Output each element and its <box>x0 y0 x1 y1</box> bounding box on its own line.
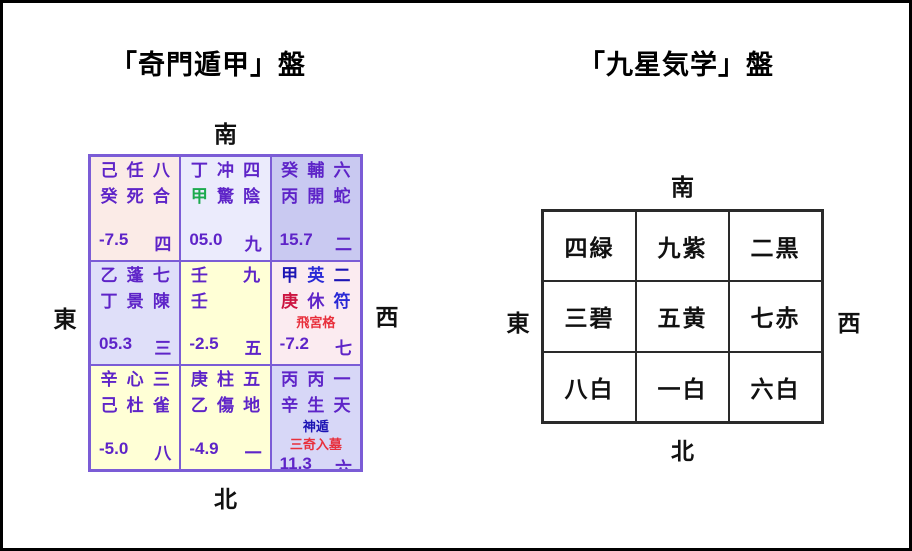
qimen-south-label: 南 <box>88 115 363 149</box>
qimen-char: 合 <box>152 185 170 209</box>
qimen-char: 地 <box>243 394 261 418</box>
qimen-north-label: 北 <box>88 480 363 514</box>
qimen-cell-2-row2: 丙 開 蛇 <box>272 183 360 209</box>
spacer <box>181 209 269 230</box>
qimen-cell-1: 丁 冲 四 甲 驚 陰 05.0 九 <box>180 156 270 261</box>
qimen-score: 05.0 <box>189 230 222 255</box>
qimen-char: 壬 <box>190 290 208 314</box>
qimen-cell-5-bottom: -7.2 七 <box>272 334 360 364</box>
kyusei-cell-1: 九紫 <box>636 211 729 281</box>
qimen-palace-number: 三 <box>154 334 171 359</box>
qimen-cell-6: 辛 心 三 己 杜 雀 -5.0 八 <box>90 365 180 470</box>
qimen-char: 壬 <box>190 264 208 288</box>
qimen-char: 庚 <box>190 368 208 392</box>
qimen-cell-7: 庚 柱 五 乙 傷 地 -4.9 一 <box>180 365 270 470</box>
qimen-cell-8-bottom: 11.3 六 <box>272 454 360 470</box>
qimen-cell-7-row1: 庚 柱 五 <box>181 366 269 392</box>
qimen-note-sanki-nyubo: 三奇入墓 <box>272 436 360 454</box>
qimen-char: 六 <box>333 159 351 183</box>
qimen-score: 05.3 <box>99 334 132 359</box>
qimen-score: -2.5 <box>189 334 218 359</box>
qimen-palace-number: 八 <box>154 439 171 464</box>
qimen-char: 丙 <box>281 185 299 209</box>
qimen-char: 休 <box>307 290 325 314</box>
qimen-char: 死 <box>126 185 144 209</box>
qimen-palace-number: 五 <box>245 334 262 359</box>
qimen-score: -5.0 <box>99 439 128 464</box>
qimen-char: 心 <box>126 368 144 392</box>
qimen-west-label: 西 <box>369 298 405 332</box>
qimen-char-navy: 二 <box>333 264 351 288</box>
qimen-char: 傷 <box>216 394 234 418</box>
qimen-cell-0-row1: 己 任 八 <box>91 157 179 183</box>
qimen-char: 癸 <box>281 159 299 183</box>
qimen-char: 八 <box>152 159 170 183</box>
qimen-char: 丙 <box>281 368 299 392</box>
qimen-char: 一 <box>333 368 351 392</box>
qimen-char: 五 <box>243 368 261 392</box>
qimen-cell-3-row1: 乙 蓬 七 <box>91 262 179 288</box>
qimen-cell-1-row2: 甲 驚 陰 <box>181 183 269 209</box>
kyusei-west-label: 西 <box>831 304 867 338</box>
qimen-char: 己 <box>100 394 118 418</box>
qimen-char: 杜 <box>126 394 144 418</box>
qimen-palace-number: 四 <box>154 230 171 255</box>
qimen-cell-2-bottom: 15.7 二 <box>272 230 360 260</box>
kyusei-cell-4: 五黄 <box>636 281 729 351</box>
qimen-cell-5: 甲 英 二 庚 休 符 飛宮格 -7.2 七 <box>271 261 361 366</box>
qimen-char: 開 <box>307 185 325 209</box>
qimen-char: 蛇 <box>333 185 351 209</box>
qimen-char: 丁 <box>190 159 208 183</box>
qimen-char: 驚 <box>216 185 234 209</box>
qimen-note-hikyukaku: 飛宮格 <box>272 314 360 332</box>
kyusei-cell-2: 二黒 <box>729 211 822 281</box>
qimen-score: -7.5 <box>99 230 128 255</box>
qimen-cell-8-row2: 辛 生 天 <box>272 392 360 418</box>
qimen-cell-3: 乙 蓬 七 丁 景 陳 05.3 三 <box>90 261 180 366</box>
qimen-board-title: 「奇門遁甲」盤 <box>73 43 343 82</box>
qimen-cell-1-row1: 丁 冲 四 <box>181 157 269 183</box>
qimen-cell-6-bottom: -5.0 八 <box>91 439 179 469</box>
qimen-cell-1-bottom: 05.0 九 <box>181 230 269 260</box>
qimen-char: 冲 <box>216 159 234 183</box>
qimen-score: 11.3 <box>280 454 312 470</box>
qimen-char: 陰 <box>243 185 261 209</box>
kyusei-cell-0: 四緑 <box>543 211 636 281</box>
qimen-note-shinton: 神遁 <box>272 418 360 436</box>
qimen-palace-number: 六 <box>335 454 352 470</box>
qimen-char: 九 <box>243 264 261 288</box>
kyusei-board: 四緑 九紫 二黒 三碧 五黄 七赤 八白 一白 六白 <box>541 209 824 424</box>
qimen-char-green: 甲 <box>190 185 208 209</box>
qimen-cell-2: 癸 輔 六 丙 開 蛇 15.7 二 <box>271 156 361 261</box>
qimen-cell-6-row2: 己 杜 雀 <box>91 392 179 418</box>
qimen-score: -7.2 <box>280 334 309 359</box>
qimen-char-blue: 符 <box>333 290 351 314</box>
kyusei-south-label: 南 <box>541 168 824 202</box>
qimen-char: 柱 <box>216 368 234 392</box>
qimen-east-label: 東 <box>47 300 83 334</box>
qimen-cell-4-row2: 壬 <box>181 288 269 314</box>
qimen-char: 七 <box>152 264 170 288</box>
qimen-cell-0-bottom: -7.5 四 <box>91 230 179 260</box>
kyusei-cell-6: 八白 <box>543 352 636 422</box>
qimen-char: 己 <box>100 159 118 183</box>
spacer <box>181 418 269 439</box>
qimen-char <box>216 264 234 288</box>
spacer <box>91 314 179 335</box>
qimen-char: 輔 <box>307 159 325 183</box>
qimen-char: 癸 <box>100 185 118 209</box>
qimen-char-blue: 英 <box>307 264 325 288</box>
kyusei-cell-5: 七赤 <box>729 281 822 351</box>
kyusei-cell-8: 六白 <box>729 352 822 422</box>
qimen-cell-4-row1: 壬 九 <box>181 262 269 288</box>
spacer <box>272 209 360 230</box>
qimen-cell-5-row2: 庚 休 符 <box>272 288 360 314</box>
two-boards-figure: 「奇門遁甲」盤 「九星気学」盤 南 東 西 北 己 任 八 癸 死 合 -7.5… <box>0 0 912 551</box>
qimen-char-navy: 甲 <box>281 264 299 288</box>
qimen-char: 四 <box>243 159 261 183</box>
qimen-char: 丙 <box>307 368 325 392</box>
qimen-char: 景 <box>126 290 144 314</box>
qimen-cell-4-bottom: -2.5 五 <box>181 334 269 364</box>
qimen-cell-0: 己 任 八 癸 死 合 -7.5 四 <box>90 156 180 261</box>
qimen-char: 生 <box>307 394 325 418</box>
qimen-char: 蓬 <box>126 264 144 288</box>
qimen-cell-7-bottom: -4.9 一 <box>181 439 269 469</box>
qimen-cell-8: 丙 丙 一 辛 生 天 神遁 三奇入墓 11.3 六 <box>271 365 361 470</box>
qimen-cell-7-row2: 乙 傷 地 <box>181 392 269 418</box>
spacer <box>91 209 179 230</box>
qimen-char: 辛 <box>281 394 299 418</box>
qimen-score: -4.9 <box>189 439 218 464</box>
qimen-cell-0-row2: 癸 死 合 <box>91 183 179 209</box>
qimen-cell-3-bottom: 05.3 三 <box>91 334 179 364</box>
qimen-char: 丁 <box>100 290 118 314</box>
qimen-char: 辛 <box>100 368 118 392</box>
qimen-palace-number: 一 <box>245 439 262 464</box>
spacer <box>181 314 269 335</box>
kyusei-cell-3: 三碧 <box>543 281 636 351</box>
qimen-cell-5-row1: 甲 英 二 <box>272 262 360 288</box>
qimen-cell-4: 壬 九 壬 -2.5 五 <box>180 261 270 366</box>
qimen-cell-3-row2: 丁 景 陳 <box>91 288 179 314</box>
qimen-char: 天 <box>333 394 351 418</box>
qimen-char: 雀 <box>152 394 170 418</box>
qimen-char: 乙 <box>190 394 208 418</box>
qimen-char: 陳 <box>152 290 170 314</box>
qimen-char <box>243 290 261 314</box>
qimen-cell-2-row1: 癸 輔 六 <box>272 157 360 183</box>
spacer <box>91 418 179 439</box>
qimen-palace-number: 二 <box>335 230 352 255</box>
kyusei-north-label: 北 <box>541 432 824 466</box>
qimen-score: 15.7 <box>280 230 313 255</box>
kyusei-cell-7: 一白 <box>636 352 729 422</box>
qimen-board: 己 任 八 癸 死 合 -7.5 四 丁 冲 四 甲 <box>88 154 363 472</box>
kyusei-east-label: 東 <box>500 304 536 338</box>
kyusei-board-title: 「九星気学」盤 <box>531 43 821 82</box>
qimen-char-crimson: 庚 <box>281 290 299 314</box>
qimen-char: 三 <box>152 368 170 392</box>
qimen-char <box>216 290 234 314</box>
qimen-cell-6-row1: 辛 心 三 <box>91 366 179 392</box>
qimen-char: 乙 <box>100 264 118 288</box>
qimen-char: 任 <box>126 159 144 183</box>
qimen-palace-number: 七 <box>335 334 352 359</box>
qimen-cell-8-row1: 丙 丙 一 <box>272 366 360 392</box>
qimen-palace-number: 九 <box>245 230 262 255</box>
